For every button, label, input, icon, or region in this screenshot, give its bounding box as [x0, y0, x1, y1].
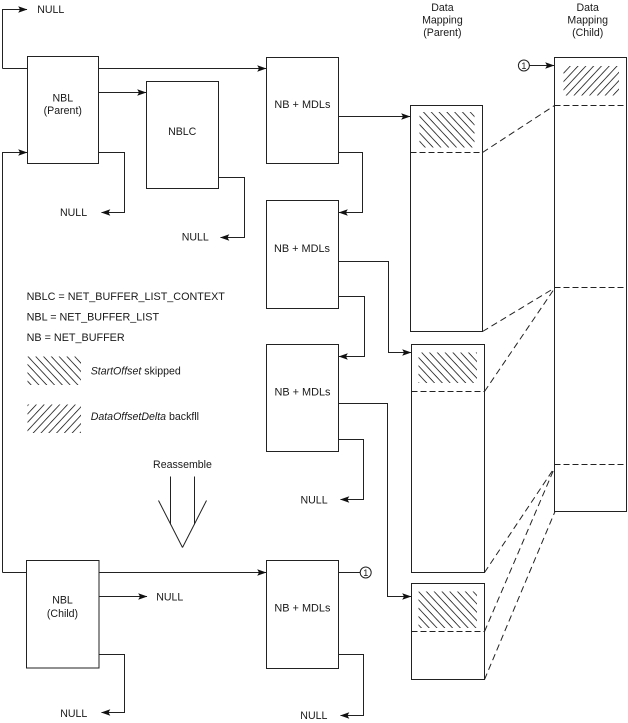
svg-text:Data: Data: [431, 2, 453, 14]
svg-text:NB + MDLs: NB + MDLs: [274, 603, 331, 615]
svg-text:NULL: NULL: [301, 494, 328, 506]
svg-text:NBL: NBL: [52, 594, 73, 606]
svg-text:(Child): (Child): [572, 27, 603, 39]
svg-text:NB + MDLs: NB + MDLs: [275, 387, 332, 399]
svg-text:Data: Data: [577, 2, 599, 14]
svg-text:StartOffset skipped: StartOffset skipped: [91, 365, 181, 377]
svg-text:1: 1: [363, 568, 368, 578]
svg-text:NULL: NULL: [37, 4, 64, 16]
svg-text:Mapping: Mapping: [422, 15, 463, 27]
svg-text:NULL: NULL: [300, 710, 327, 722]
svg-text:NULL: NULL: [182, 232, 209, 244]
svg-text:Reassemble: Reassemble: [153, 459, 212, 471]
svg-text:(Child): (Child): [47, 608, 78, 620]
svg-text:NB + MDLs: NB + MDLs: [274, 243, 331, 255]
svg-text:(Parent): (Parent): [423, 27, 461, 39]
svg-text:NBLC: NBLC: [168, 126, 197, 138]
svg-text:NULL: NULL: [60, 708, 87, 720]
svg-text:NBL = NET_BUFFER_LIST: NBL = NET_BUFFER_LIST: [27, 312, 160, 324]
svg-text:1: 1: [521, 61, 526, 71]
svg-text:NBLC = NET_BUFFER_LIST_CONTEXT: NBLC = NET_BUFFER_LIST_CONTEXT: [27, 291, 226, 303]
svg-text:NB + MDLs: NB + MDLs: [274, 99, 331, 111]
svg-text:NB = NET_BUFFER: NB = NET_BUFFER: [27, 332, 125, 344]
svg-text:NBL: NBL: [52, 93, 73, 105]
svg-text:(Parent): (Parent): [44, 105, 82, 117]
svg-text:NULL: NULL: [60, 207, 87, 219]
svg-text:DataOffsetDelta backfll: DataOffsetDelta backfll: [91, 411, 199, 423]
svg-text:Mapping: Mapping: [567, 15, 608, 27]
svg-text:NULL: NULL: [156, 592, 183, 604]
